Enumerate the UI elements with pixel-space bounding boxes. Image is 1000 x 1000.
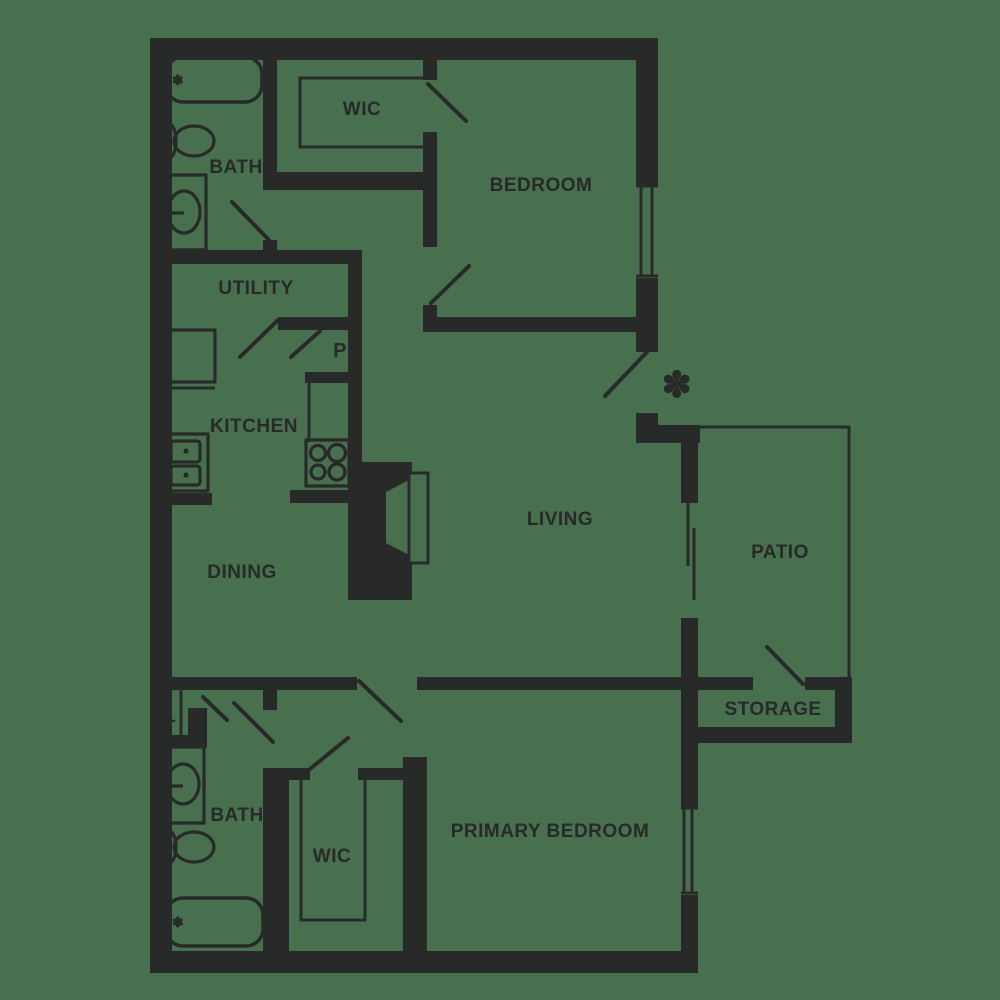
wall-segment bbox=[698, 727, 852, 743]
door-swing-storage bbox=[767, 647, 803, 684]
floor-plan: WIC BATH BEDROOM UTILITY P KITCHEN DININ… bbox=[0, 0, 1000, 1000]
door-swing-utility bbox=[240, 320, 278, 357]
wall-segment bbox=[681, 443, 698, 503]
wall-segment bbox=[263, 768, 289, 951]
wall-segment bbox=[423, 53, 437, 80]
room-label-primary-bedroom: PRIMARY BEDROOM bbox=[451, 821, 650, 842]
wall-segment bbox=[290, 490, 362, 503]
wall-segment bbox=[423, 305, 437, 332]
wall-segment bbox=[698, 677, 753, 690]
bedroom-window bbox=[636, 186, 658, 276]
wall-segment bbox=[155, 493, 212, 505]
wall-segment bbox=[263, 53, 277, 190]
room-label-utility: UTILITY bbox=[218, 278, 293, 299]
door-swing-entry bbox=[605, 352, 647, 396]
wall-segment bbox=[263, 690, 277, 710]
wall-segment bbox=[681, 690, 698, 807]
wall-segment bbox=[417, 677, 682, 690]
room-label-kitchen: KITCHEN bbox=[210, 416, 298, 437]
room-label-bedroom: BEDROOM bbox=[490, 175, 593, 196]
room-label-pantry: P bbox=[333, 340, 347, 362]
room-label-living: LIVING bbox=[527, 509, 593, 530]
wall-segment bbox=[150, 951, 698, 973]
wall-segment bbox=[636, 278, 658, 352]
kitchen-sink bbox=[156, 434, 208, 491]
wall-segment bbox=[403, 757, 427, 951]
door-swing-bath-top bbox=[232, 202, 269, 240]
room-label-dining: DINING bbox=[207, 562, 277, 583]
wall-segment bbox=[188, 708, 207, 737]
tub-faucet-bottom-icon: ✽ bbox=[172, 914, 184, 930]
door-swing-pantry bbox=[291, 331, 320, 357]
room-label-wic-top: WIC bbox=[343, 99, 381, 120]
door-swing-wic-bottom bbox=[310, 738, 348, 769]
room-label-linen: L bbox=[164, 705, 177, 727]
door-swing-primary-bedroom bbox=[359, 681, 401, 721]
door-swing-bedroom bbox=[431, 266, 469, 303]
wall-segment bbox=[636, 38, 658, 185]
room-label-wic-bottom: WIC bbox=[313, 846, 351, 867]
room-label-patio: PATIO bbox=[751, 542, 809, 563]
room-label-bath-bottom: BATH bbox=[210, 805, 263, 826]
wall-segment bbox=[150, 677, 357, 690]
room-label-storage: STORAGE bbox=[724, 699, 821, 720]
labels: WIC BATH BEDROOM UTILITY P KITCHEN DININ… bbox=[164, 99, 822, 867]
primary-bedroom-window bbox=[681, 808, 698, 893]
wall-segment bbox=[681, 895, 698, 973]
wall-segment bbox=[305, 372, 362, 383]
tv bbox=[409, 473, 428, 563]
wall-segment bbox=[437, 317, 658, 332]
wall-segment bbox=[263, 172, 437, 190]
wall-segment bbox=[289, 768, 310, 780]
media-console bbox=[360, 462, 428, 600]
room-label-bath-top: BATH bbox=[209, 157, 262, 178]
wall-segment bbox=[805, 677, 837, 690]
wall-segment bbox=[172, 250, 362, 264]
stove bbox=[306, 440, 349, 486]
door-swing-wic-top bbox=[428, 84, 466, 121]
wall-segment bbox=[278, 317, 362, 330]
entry-marker-icon: ✽ bbox=[662, 364, 693, 405]
wall-segment bbox=[681, 618, 698, 690]
patio-sliding-door bbox=[688, 498, 694, 600]
tub-faucet-top-icon: ✽ bbox=[172, 72, 184, 88]
